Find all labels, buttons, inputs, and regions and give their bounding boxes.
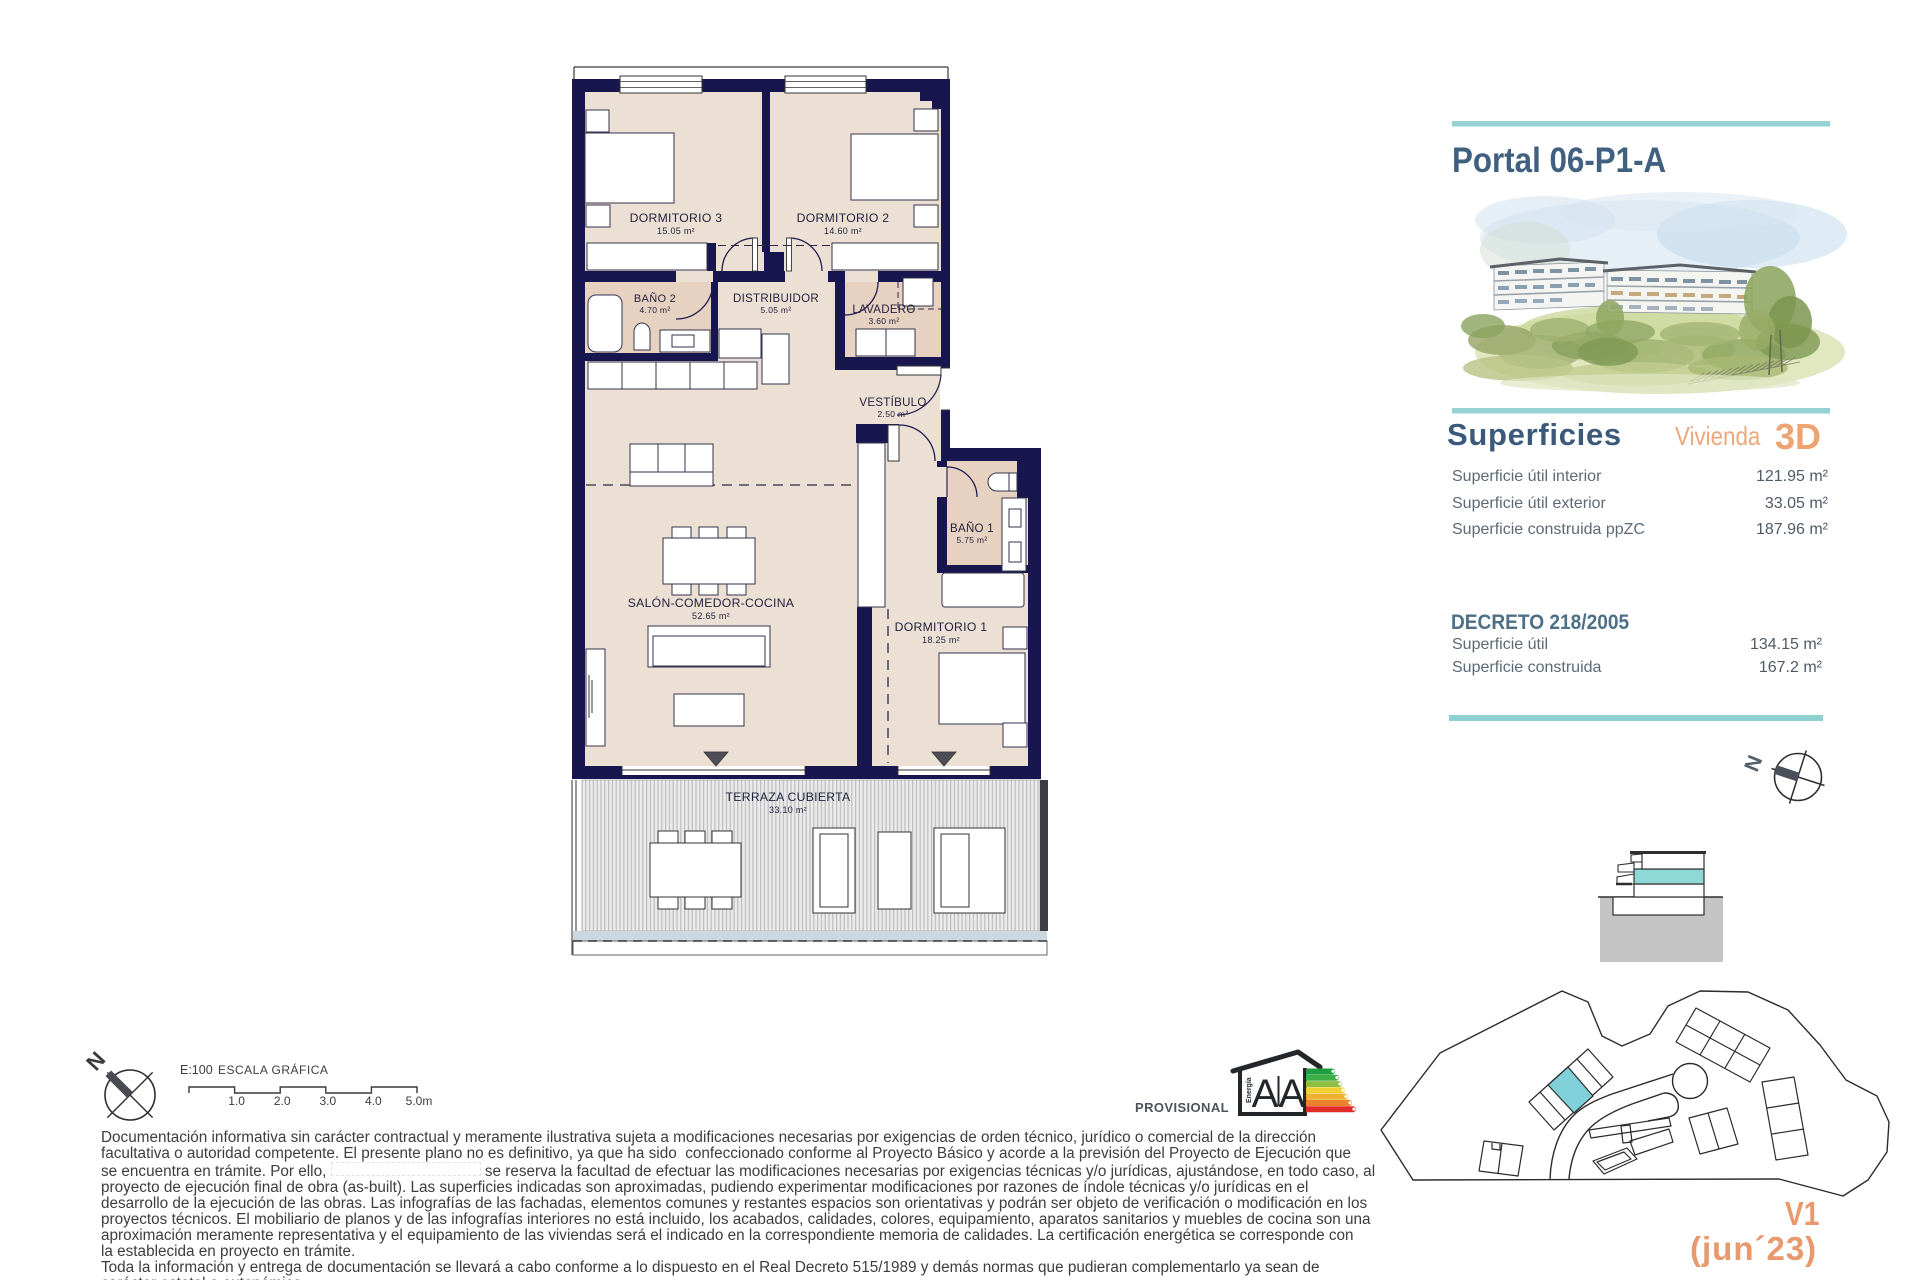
svg-text:3.0: 3.0 xyxy=(319,1094,336,1108)
svg-text:2.0: 2.0 xyxy=(274,1094,291,1108)
svg-text:DORMITORIO 1: DORMITORIO 1 xyxy=(895,620,988,634)
svg-text:4.0: 4.0 xyxy=(365,1094,382,1108)
svg-text:ESCALA GRÁFICA: ESCALA GRÁFICA xyxy=(218,1062,328,1077)
svg-text:DORMITORIO 3: DORMITORIO 3 xyxy=(630,211,723,225)
svg-text:5.05 m²: 5.05 m² xyxy=(761,305,792,315)
svg-text:DISTRIBUIDOR: DISTRIBUIDOR xyxy=(733,293,819,305)
svg-text:14.60 m²: 14.60 m² xyxy=(824,226,862,236)
svg-text:BAÑO 2: BAÑO 2 xyxy=(634,292,676,305)
svg-text:DORMITORIO 2: DORMITORIO 2 xyxy=(797,211,890,225)
svg-text:2.50 m²: 2.50 m² xyxy=(878,409,909,419)
svg-text:52.65 m²: 52.65 m² xyxy=(692,611,730,621)
svg-text:18.25 m²: 18.25 m² xyxy=(922,635,960,645)
svg-text:A: A xyxy=(1279,1072,1306,1116)
svg-text:TERRAZA CUBIERTA: TERRAZA CUBIERTA xyxy=(726,790,851,804)
svg-text:33.10 m²: 33.10 m² xyxy=(769,805,807,815)
svg-text:5.0m: 5.0m xyxy=(406,1094,433,1108)
svg-text:E:100: E:100 xyxy=(180,1063,213,1077)
svg-text:15.05 m²: 15.05 m² xyxy=(657,226,695,236)
svg-text:1.0: 1.0 xyxy=(228,1094,245,1108)
svg-text:3.60 m²: 3.60 m² xyxy=(869,316,900,326)
svg-text:LAVADERO: LAVADERO xyxy=(852,304,915,316)
svg-text:Energía: Energía xyxy=(1246,1077,1253,1103)
svg-text:SALÓN-COMEDOR-COCINA: SALÓN-COMEDOR-COCINA xyxy=(628,595,795,610)
svg-text:VESTÍBULO: VESTÍBULO xyxy=(859,396,926,409)
svg-text:A: A xyxy=(1252,1072,1279,1116)
svg-text:N: N xyxy=(1740,752,1767,775)
svg-text:BAÑO 1: BAÑO 1 xyxy=(950,522,994,535)
svg-text:N: N xyxy=(81,1047,110,1076)
svg-text:5.75 m²: 5.75 m² xyxy=(957,535,988,545)
svg-text:4.70 m²: 4.70 m² xyxy=(640,305,671,315)
